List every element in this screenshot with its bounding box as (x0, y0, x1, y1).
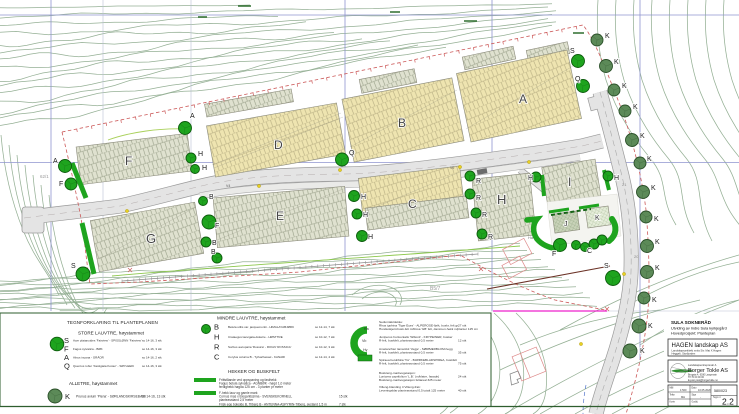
svg-text:75 stk: 75 stk (458, 362, 467, 366)
svg-text:A: A (519, 92, 527, 106)
svg-text:B5/7: B5/7 (430, 286, 441, 292)
svg-text:Vb: Vb (362, 339, 366, 343)
svg-text:so 12-14, 7 stk: so 12-14, 7 stk (315, 325, 335, 329)
svg-text:H: H (614, 175, 619, 182)
svg-text:S: S (570, 48, 575, 55)
svg-text:Crataegus laevigata-doketre -: Crataegus laevigata-doketre - HØSTTRE (228, 335, 283, 339)
svg-text:S: S (604, 263, 609, 270)
svg-text:20: 20 (634, 254, 639, 259)
svg-text:S: S (71, 263, 76, 270)
svg-text:so 14-16, 3 stk: so 14-16, 3 stk (142, 347, 162, 351)
svg-text:K: K (655, 239, 660, 246)
svg-text:Sign: Sign (692, 395, 697, 397)
svg-text:A: A (53, 158, 58, 165)
svg-text:STORE LAUVTRE, høystammet: STORE LAUVTRE, høystammet (78, 331, 145, 336)
svg-text:Q: Q (575, 76, 581, 83)
svg-text:H: H (361, 194, 366, 201)
svg-text:E-post post@borgertokle.no: E-post post@borgertokle.no (688, 379, 718, 382)
svg-text:Betula utilis var. jacquemonti: Betula utilis var. jacquemontii - HIMALA… (228, 325, 294, 329)
svg-text:Fagus sylvatica - BØK: Fagus sylvatica - BØK (73, 347, 103, 351)
svg-text:B: B (211, 249, 216, 256)
svg-text:ferdighekk høgda 125 cm - 3 pl: ferdighekk høgda 125 cm - 3 planter pr m… (219, 385, 284, 389)
svg-text:F: F (125, 154, 132, 168)
svg-text:10.05.2020: 10.05.2020 (698, 388, 712, 392)
svg-text:Prunus avium ‘Plena’ - SØRLAND: Prunus avium ‘Plena’ - SØRLANDSKIRSEBÆR (76, 395, 146, 399)
svg-text:Hundeskjermbusk-felt m/Rosa 'G: Hundeskjermbusk-felt m/Rosa 'GB' felt, d… (379, 327, 478, 331)
svg-text:TEGNFORKLARING TIL PLANTEPLANE: TEGNFORKLARING TIL PLANTEPLANEN (67, 320, 158, 325)
svg-text:Busk/eng-markvegetasjon feltar: Busk/eng-markvegetasjon feltareal 325 me… (379, 378, 441, 382)
svg-text:B: B (214, 323, 219, 332)
svg-text:21: 21 (622, 182, 627, 187)
svg-text:MINDRE LAUVTRE, høystammet: MINDRE LAUVTRE, høystammet (217, 316, 286, 321)
svg-text:-: - (700, 396, 701, 399)
svg-text:SULA SOKNERÅD: SULA SOKNERÅD (671, 319, 712, 325)
svg-text:Landskapsentreprenør A: Landskapsentreprenør A (688, 363, 717, 367)
svg-text:D: D (274, 138, 283, 152)
svg-text:R: R (214, 343, 220, 352)
svg-text:Mål: Mål (670, 387, 674, 390)
svg-text:K: K (647, 156, 652, 163)
svg-text:Tegn nr: Tegn nr (713, 396, 721, 399)
svg-text:Kontr: Kontr (670, 401, 676, 404)
svg-text:580/023: 580/023 (714, 389, 727, 393)
svg-text:15 stk: 15 stk (339, 395, 348, 399)
svg-text:K: K (614, 59, 619, 66)
svg-text:HAGEN landskap AS: HAGEN landskap AS (672, 343, 728, 349)
svg-text:35 stk: 35 stk (458, 351, 467, 355)
svg-text:R-felt, buskfelt, planteavstan: R-felt, buskfelt, planteavstand 0,5 mete… (379, 362, 434, 366)
svg-text:ALLETRE, høystammet: ALLETRE, høystammet (69, 381, 118, 386)
svg-text:V4: V4 (226, 184, 230, 188)
svg-text:so 14-16, 3 stk: so 14-16, 3 stk (142, 339, 162, 343)
svg-text:R: R (482, 212, 487, 219)
svg-text:K: K (640, 133, 645, 140)
svg-text:Corylus colurna B - Tyrkarhass: Corylus colurna B - Tyrkarhassel - KANAR… (228, 355, 285, 359)
svg-text:Frisk ege bokside B, Tilberg B: Frisk ege bokside B, Tilberg B - ANTENNA… (219, 402, 327, 406)
svg-text:Q: Q (64, 362, 70, 371)
svg-text:Quercus robur 'Fastigiata Kost: Quercus robur 'Fastigiata Koster' - SØYL… (73, 364, 134, 368)
svg-text:Teikn: Teikn (670, 395, 676, 397)
svg-text:B: B (398, 116, 406, 130)
svg-text:7 stk: 7 stk (339, 402, 346, 406)
svg-text:Leveringsklar planteavstand 0,: Leveringsklar planteavstand 0,5 totalt 1… (379, 389, 445, 393)
svg-text:R: R (476, 178, 481, 185)
svg-text:Godkj: Godkj (692, 402, 698, 404)
svg-text:so 12-14, 4 stk: so 12-14, 4 stk (315, 355, 335, 359)
svg-text:62/1: 62/1 (40, 174, 49, 179)
svg-text:B: B (209, 194, 214, 201)
svg-text:HEKKER OG BUSKFELT: HEKKER OG BUSKFELT (228, 369, 280, 374)
svg-text:so 10-12, 7 stk: so 10-12, 7 stk (315, 335, 335, 339)
svg-text:Alnus incana - GRÅOR: Alnus incana - GRÅOR (73, 355, 105, 360)
svg-text:2.2: 2.2 (722, 397, 734, 407)
svg-text:Utviding av Indre Sula kyrkjeg: Utviding av Indre Sula kyrkjegård (671, 327, 727, 331)
svg-text:I: I (568, 175, 571, 189)
svg-text:E: E (276, 209, 284, 223)
svg-text:H: H (214, 333, 219, 342)
svg-text:H: H (368, 234, 373, 241)
svg-text:Sorbus aucuparia 'Rossica' - R: Sorbus aucuparia 'Rossica' - ROGN 'ROSSI… (228, 345, 292, 349)
svg-text:A: A (190, 113, 195, 120)
svg-text:K: K (595, 215, 600, 222)
svg-text:C: C (214, 353, 220, 362)
svg-text:K: K (648, 323, 653, 330)
svg-text:K: K (65, 392, 70, 401)
svg-text:R: R (476, 195, 481, 202)
svg-text:so 14-16, 13 stk: so 14-16, 13 stk (142, 395, 166, 399)
svg-text:so 14-16, 2 stk: so 14-16, 2 stk (142, 356, 162, 360)
svg-text:H: H (497, 192, 506, 207)
svg-text:Dato: Dato (692, 387, 698, 390)
svg-text:24 stk: 24 stk (458, 375, 467, 379)
svg-text:12 stk: 12 stk (458, 339, 467, 343)
svg-text:J: J (564, 221, 568, 228)
svg-text:B: B (212, 240, 217, 247)
svg-text:MH: MH (681, 395, 685, 399)
svg-text:K: K (622, 83, 627, 90)
svg-text:Hy: Hy (363, 348, 368, 352)
svg-text:K: K (605, 33, 610, 40)
svg-text:K: K (654, 216, 659, 223)
svg-text:Q: Q (349, 150, 355, 157)
svg-text:H: H (202, 165, 207, 172)
svg-text:so 14-16, 3 stk: so 14-16, 3 stk (142, 364, 162, 368)
svg-text:K: K (640, 348, 645, 355)
svg-text:C: C (408, 197, 417, 211)
svg-text:F: F (215, 223, 219, 230)
svg-text:so 10-12, 3 stk: so 10-12, 3 stk (315, 345, 335, 349)
svg-text:Ha: Ha (528, 235, 534, 240)
svg-text:H: H (528, 175, 533, 182)
svg-text:Acer platanoides 'Fairview' -: Acer platanoides 'Fairview' - SPISSLØNN … (73, 339, 142, 343)
svg-text:R: R (488, 234, 493, 241)
svg-text:K: K (651, 185, 656, 192)
svg-text:40 stk: 40 stk (458, 389, 467, 393)
svg-text:27 stk: 27 stk (458, 324, 467, 328)
svg-text:C: C (587, 248, 592, 255)
svg-text:H: H (198, 151, 203, 158)
svg-text:Heggeli, Storfjorden: Heggeli, Storfjorden (672, 352, 696, 356)
svg-text:G: G (146, 231, 156, 246)
svg-text:F: F (59, 181, 63, 188)
svg-text:K: K (655, 265, 660, 272)
svg-text:K: K (633, 104, 638, 111)
svg-text:F: F (552, 251, 556, 258)
svg-text:K: K (652, 297, 657, 304)
svg-text:R-felt, buskfelt, planteavstan: R-felt, buskfelt, planteavstand 0,5 mete… (379, 339, 434, 343)
svg-text:Ra: Ra (364, 327, 369, 331)
svg-text:1:500: 1:500 (680, 388, 687, 392)
svg-text:V9: V9 (450, 166, 454, 170)
svg-text:R-felt, buskfelt, planteavstan: R-felt, buskfelt, planteavstand 0,5 mete… (379, 351, 434, 355)
svg-text:Hovedprosjekt: Planteplan: Hovedprosjekt: Planteplan (671, 332, 715, 336)
svg-text:H: H (363, 212, 368, 219)
